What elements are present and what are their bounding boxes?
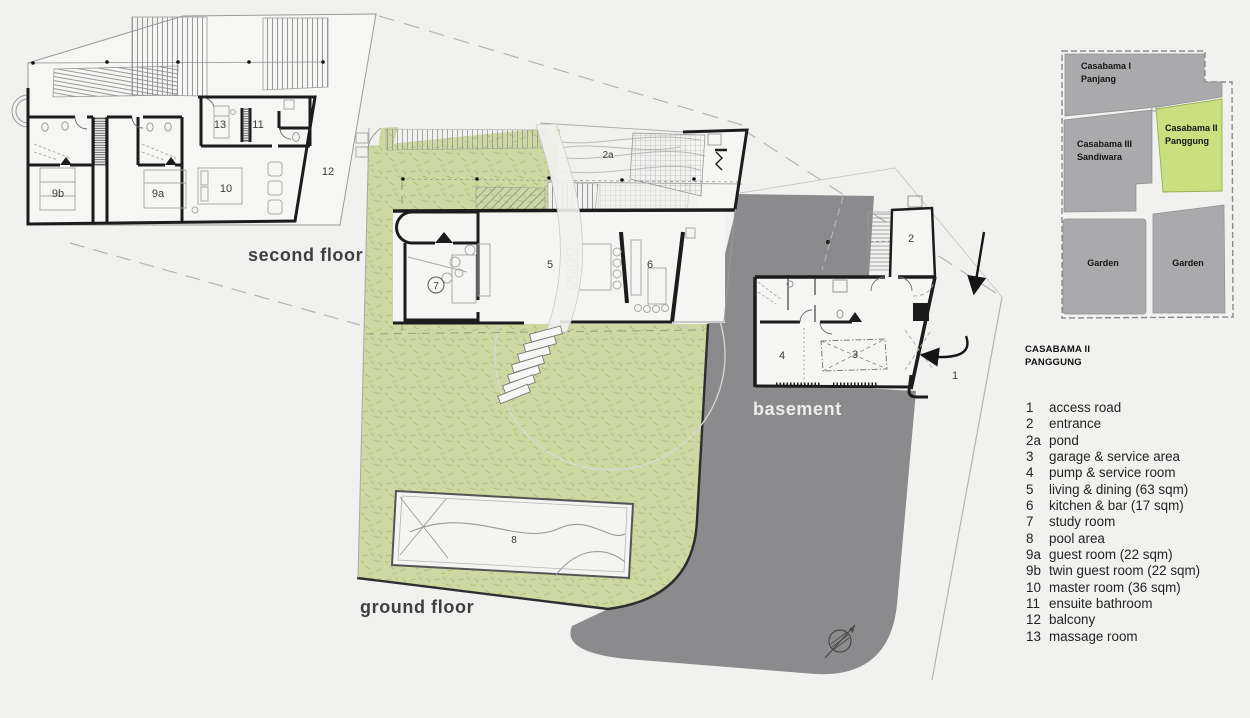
legend: 1access road 2entrance 2apond 3garage & … (1026, 400, 1200, 645)
legend-item-number: 2a (1026, 433, 1049, 449)
legend-item-label: entrance (1049, 416, 1101, 431)
legend-item-label: study room (1049, 514, 1115, 529)
project-title-line2: PANGGUNG (1025, 357, 1090, 370)
room-label-4: 4 (779, 350, 785, 362)
legend-item-number: 3 (1026, 449, 1049, 465)
legend-item: 2apond (1026, 433, 1200, 449)
room-label-7: 7 (433, 281, 439, 292)
legend-item: 5living & dining (63 sqm) (1026, 482, 1200, 498)
legend-item-label: guest room (22 sqm) (1049, 547, 1173, 562)
legend-item-label: kitchen & bar (17 sqm) (1049, 498, 1184, 513)
room-label-8: 8 (511, 535, 517, 546)
room-label-2: 2 (908, 233, 914, 245)
legend-item-number: 7 (1026, 514, 1049, 530)
legend-item-label: balcony (1049, 612, 1095, 627)
parcel-label: Garden (1087, 258, 1119, 268)
legend-item: 3garage & service area (1026, 449, 1200, 465)
legend-item-label: access road (1049, 400, 1121, 415)
legend-item: 10master room (36 sqm) (1026, 580, 1200, 596)
parcel-label: Sandiwara (1077, 152, 1123, 162)
closet-hatch (95, 118, 106, 165)
legend-item-number: 12 (1026, 612, 1049, 628)
project-title-line1: CASABAMA II (1025, 344, 1090, 357)
parcel-label-highlight: Casabama II (1165, 123, 1218, 133)
legend-item: 1access road (1026, 400, 1200, 416)
parcel-label: Garden (1172, 258, 1204, 268)
legend-item-label: living & dining (63 sqm) (1049, 482, 1188, 497)
legend-item-number: 11 (1026, 596, 1049, 612)
room-label-3: 3 (852, 349, 858, 361)
legend-item-number: 9b (1026, 563, 1049, 579)
legend-item: 9aguest room (22 sqm) (1026, 547, 1200, 563)
floor-plan-sheet: 9b 9a 10 13 11 12 second floor (0, 0, 1250, 718)
legend-item-label: pump & service room (1049, 465, 1176, 480)
room-label-11: 11 (252, 119, 263, 131)
legend-item: 9btwin guest room (22 sqm) (1026, 563, 1200, 579)
legend-item-number: 9a (1026, 547, 1049, 563)
legend-item: 12balcony (1026, 612, 1200, 628)
basement-title: basement (753, 399, 842, 419)
room-label-13: 13 (214, 119, 226, 131)
room-label-6: 6 (647, 259, 653, 271)
room-label-9a: 9a (152, 188, 165, 200)
legend-item-number: 1 (1026, 400, 1049, 416)
legend-item-number: 2 (1026, 416, 1049, 432)
pool-area: 8 (392, 491, 633, 578)
legend-item: 7study room (1026, 514, 1200, 530)
parcel-label-highlight: Panggung (1165, 136, 1209, 146)
legend-item-number: 8 (1026, 531, 1049, 547)
room-label-12: 12 (322, 166, 334, 178)
site-key-map: Casabama I Panjang Casabama III Sandiwar… (1062, 51, 1233, 318)
legend-item-number: 5 (1026, 482, 1049, 498)
legend-item: 8pool area (1026, 531, 1200, 547)
legend-item-label: ensuite bathroom (1049, 596, 1152, 611)
balcony-planter-arc (12, 95, 28, 127)
legend-item: 13massage room (1026, 629, 1200, 645)
entry-walkway (386, 129, 545, 150)
legend-item-number: 4 (1026, 465, 1049, 481)
parcel-label: Panjang (1081, 74, 1116, 84)
legend-item-label: garage & service area (1049, 449, 1180, 464)
legend-item: 2entrance (1026, 416, 1200, 432)
legend-item: 11ensuite bathroom (1026, 596, 1200, 612)
legend-item-label: pool area (1049, 531, 1105, 546)
legend-item-label: pond (1049, 433, 1079, 448)
room-label-1: 1 (952, 370, 958, 382)
room-label-5: 5 (547, 259, 553, 271)
parcel-label: Casabama I (1081, 61, 1131, 71)
second-floor-title: second floor (248, 245, 363, 265)
second-floor-plan: 9b 9a 10 13 11 12 second floor (12, 14, 376, 265)
entry-steps-hatch (476, 187, 545, 211)
room-label-2a: 2a (602, 150, 614, 161)
legend-item-number: 13 (1026, 629, 1049, 645)
legend-item: 6kitchen & bar (17 sqm) (1026, 498, 1200, 514)
legend-item-label: twin guest room (22 sqm) (1049, 563, 1200, 578)
legend-item-label: massage room (1049, 629, 1138, 644)
legend-item-label: master room (36 sqm) (1049, 580, 1181, 595)
parcel-label: Casabama III (1077, 139, 1132, 149)
ground-floor-title: ground floor (360, 597, 474, 617)
closet-hatch (243, 109, 250, 141)
legend-item: 4pump & service room (1026, 465, 1200, 481)
room-label-10: 10 (220, 183, 232, 195)
parcel-corner-marker (1152, 107, 1156, 111)
room-label-9b: 9b (52, 188, 64, 200)
project-title: CASABAMA II PANGGUNG (1025, 344, 1090, 369)
legend-item-number: 6 (1026, 498, 1049, 514)
legend-item-number: 10 (1026, 580, 1049, 596)
